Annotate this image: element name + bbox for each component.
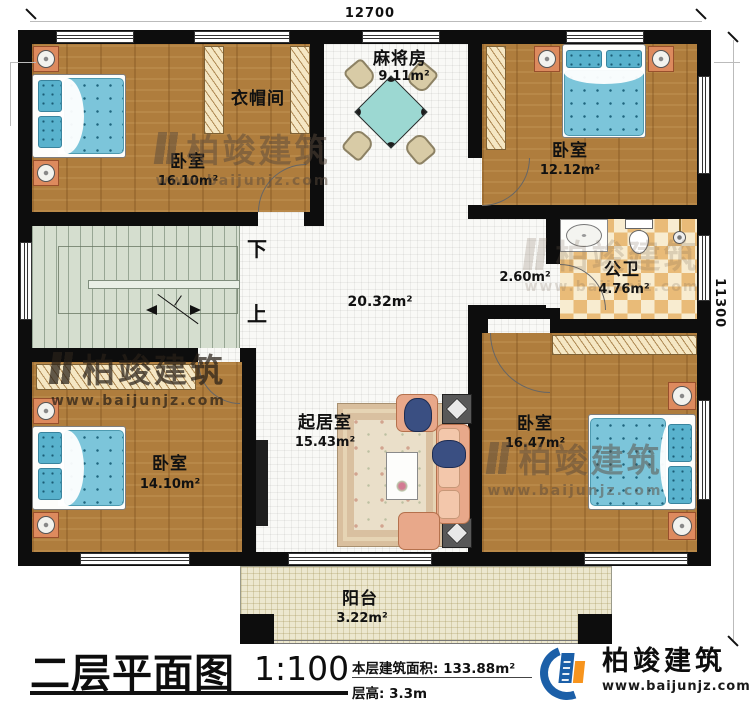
sofa-cushion [438,490,460,519]
room-label-bedroom-tr: 卧室 [522,142,618,161]
pillow [38,432,62,464]
wall [546,308,560,319]
wall [550,319,711,333]
tv [256,440,268,526]
dimension-tick [25,8,36,19]
floor-height-label: 层高: [352,686,384,702]
room-area-bedroom-bl: 14.10m² [122,478,218,492]
coffee-table [386,452,418,500]
dimension-line-right [733,40,734,640]
watermark: 柏竣建筑 www.baijunjz.com [492,230,732,295]
nightstand [33,160,59,186]
toilet-tank [625,219,653,229]
extension-line [714,62,740,63]
watermark-text: 柏竣建筑 [187,124,331,172]
armchair [398,512,440,550]
floor-area-note: 本层建筑面积: 133.88m² [352,657,515,677]
room-area-mahjong: 9.11m² [356,70,452,84]
stairs-arrow-left [146,305,157,315]
pillow [38,468,62,500]
nightstand [534,46,560,72]
title-underline [30,691,348,695]
plan-scale: 1:100 [254,649,349,688]
nightstand [668,382,696,410]
pillow [38,116,62,148]
watermark: 柏竣建筑 www.baijunjz.com [460,434,690,499]
dimension-line-top [30,21,702,22]
watermark: 柏竣建筑 www.baijunjz.com [26,344,251,409]
titleblock-divider [352,677,532,678]
watermark-building-icon [522,238,550,270]
wardrobe [552,335,697,355]
brand-name: 柏竣建筑 [602,648,750,675]
pillow [38,80,62,112]
nightstand [668,512,696,540]
window [194,31,290,43]
balcony-floor [240,566,612,644]
floor-area-value: 133.88m² [443,661,515,677]
wall [468,205,711,219]
watermark-building-icon [153,132,181,164]
watermark-text: 柏竣建筑 [82,344,226,392]
room-area-hall: 20.32m² [330,295,430,310]
wall [304,212,310,226]
floor-height-value: 3.3m [389,686,427,702]
stairs-up-label: 上 [240,303,274,325]
floor-plan: 衣帽间 卧室 16.10m² 麻将房 9.11m² 卧室 12.12m² 公卫 … [0,0,750,710]
room-label-bedroom-bl: 卧室 [122,455,218,474]
watermark-site: www.baijunjz.com [492,279,732,295]
watermark: 柏竣建筑 www.baijunjz.com [138,124,348,189]
dimension-width: 12700 [330,6,410,21]
wardrobe [486,46,506,150]
room-label-cloakroom: 衣帽间 [210,90,306,109]
watermark-text: 柏竣建筑 [556,230,700,278]
nightstand [33,512,59,538]
balcony-column [240,614,274,644]
brand-site: www.baijunjz.com [602,679,750,694]
stairs-down-label: 下 [240,238,274,260]
room-area-balcony: 3.22m² [314,612,410,626]
nightstand [648,46,674,72]
pillow [606,50,642,68]
brand-logo-icon [540,646,594,700]
room-label-living: 起居室 [277,414,373,433]
brand-logo: 柏竣建筑 www.baijunjz.com [540,646,740,702]
floor-height-note: 层高: 3.3m [352,682,427,702]
wall [468,30,482,158]
wall [18,212,258,226]
room-area-bedroom-tr: 12.12m² [522,164,618,178]
window [56,31,134,43]
nightstand [33,46,59,72]
window [698,400,710,500]
balcony-column [578,614,612,644]
watermark-building-icon [485,442,513,474]
window [80,553,190,565]
dimension-tick [695,8,706,19]
window [566,31,644,43]
watermark-site: www.baijunjz.com [138,173,348,189]
window [362,31,440,43]
pillow [566,50,602,68]
extension-line [10,62,36,63]
balcony-door-window [288,553,432,565]
room-label-balcony: 阳台 [312,590,408,609]
watermark-text: 柏竣建筑 [519,434,663,482]
window [20,242,32,320]
window [584,553,688,565]
wall [468,305,546,319]
room-label-bedroom-br: 卧室 [487,415,583,434]
watermark-site: www.baijunjz.com [26,393,251,409]
extension-line [10,62,11,126]
room-label-mahjong: 麻将房 [352,50,448,69]
watermark-building-icon [49,352,77,384]
window [698,76,710,174]
side-table [442,394,472,424]
person [404,398,432,432]
watermark-site: www.baijunjz.com [460,483,690,499]
floor-area-label: 本层建筑面积: [352,661,438,677]
room-area-living: 15.43m² [277,436,373,450]
stairs-rail [88,280,240,289]
stairs-arrow-right [190,305,201,315]
